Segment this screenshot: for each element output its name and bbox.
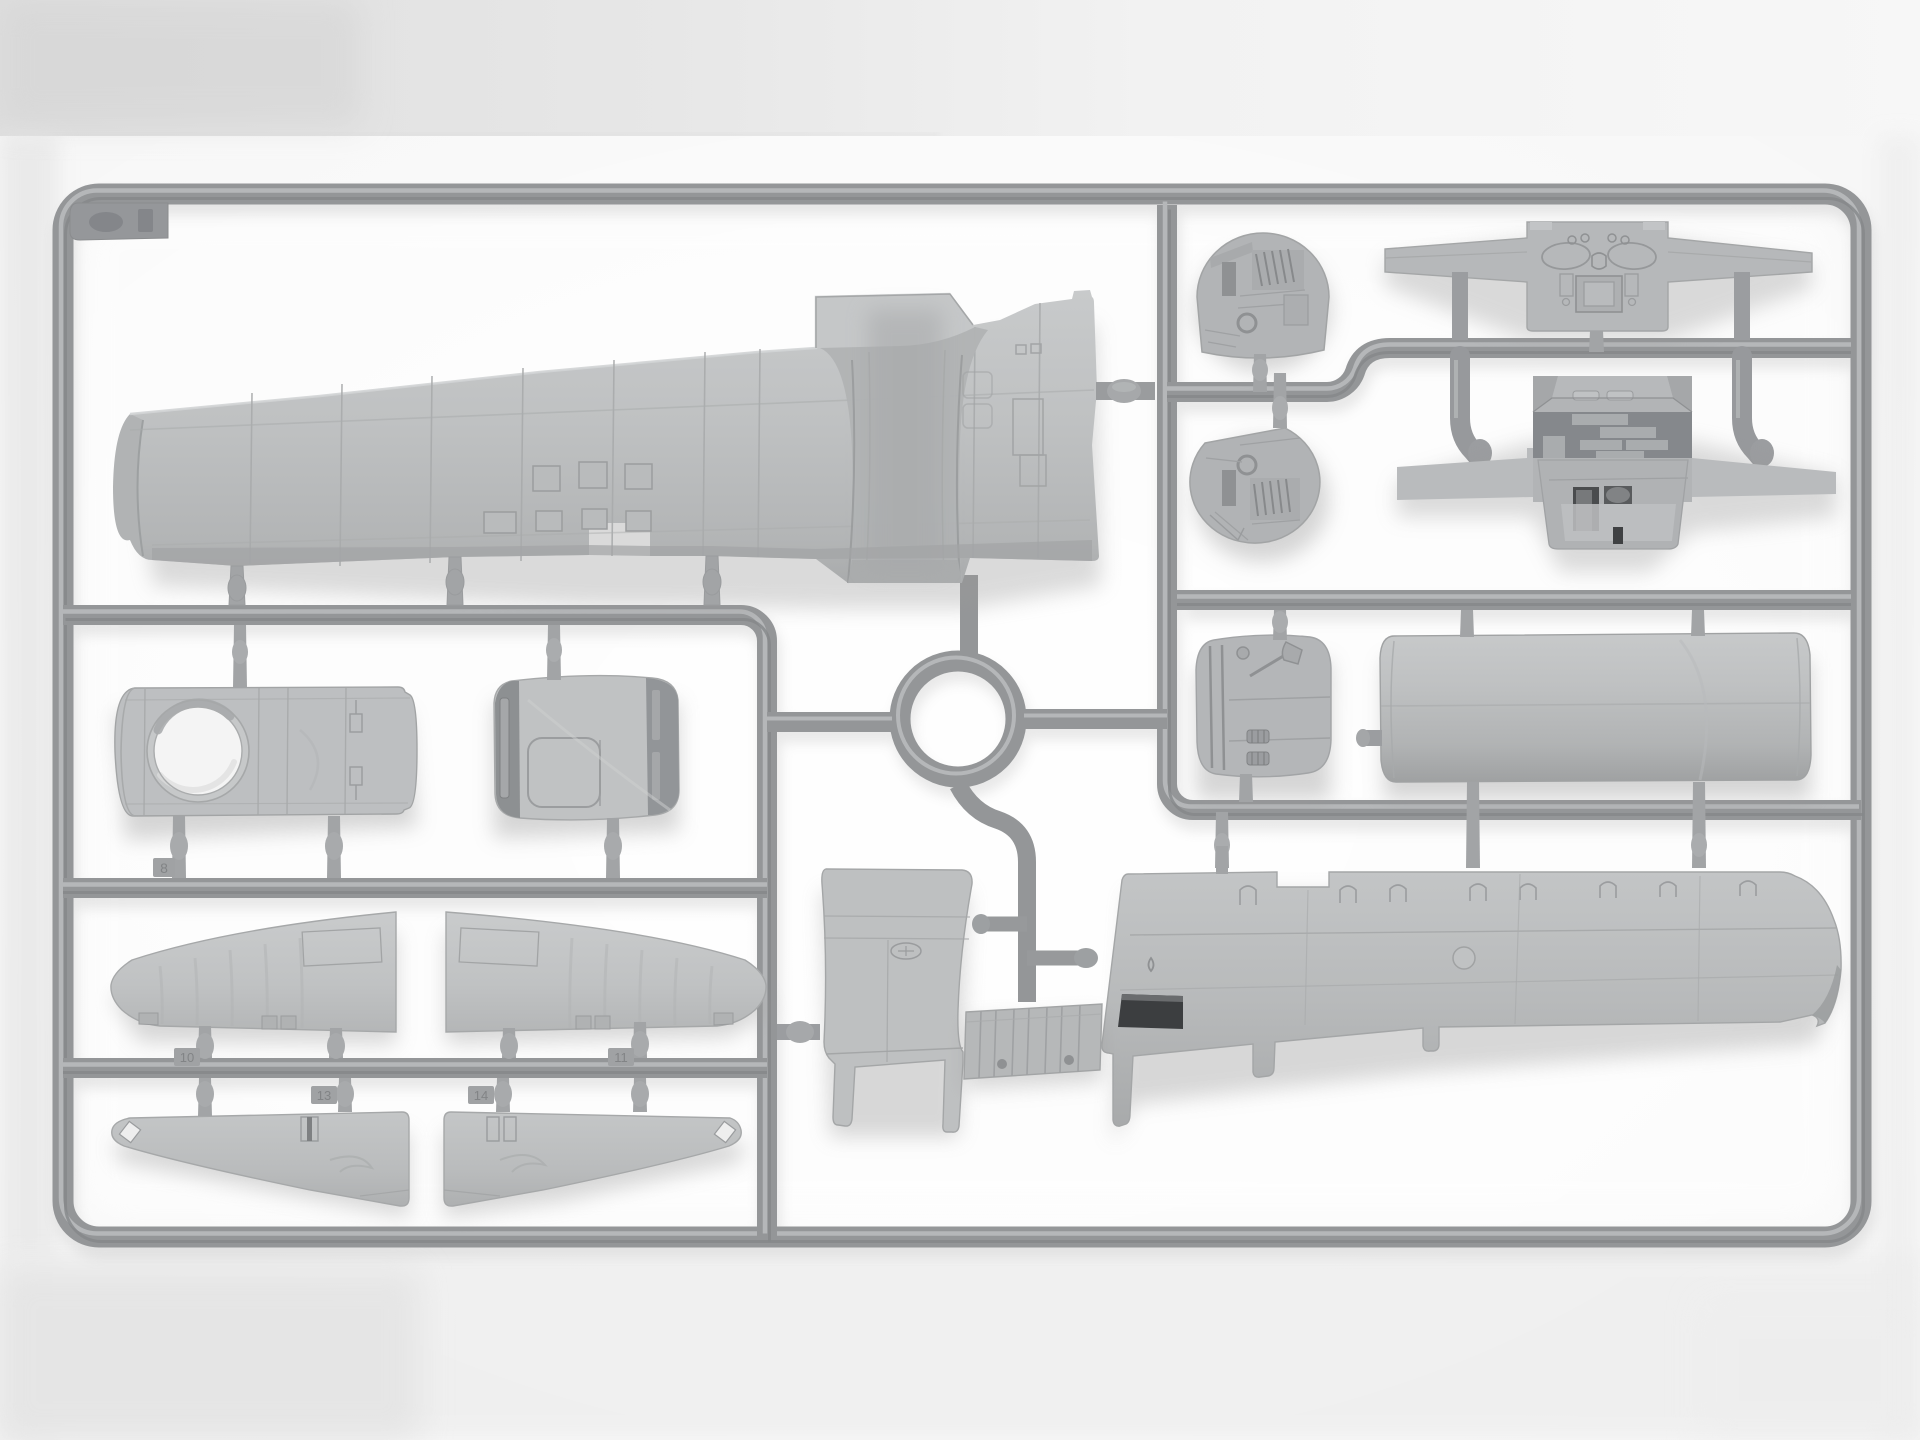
svg-text:8: 8 — [160, 860, 168, 876]
svg-text:11: 11 — [614, 1050, 628, 1065]
svg-text:10: 10 — [180, 1050, 194, 1065]
svg-text:14: 14 — [474, 1088, 488, 1103]
svg-text:13: 13 — [317, 1088, 331, 1103]
